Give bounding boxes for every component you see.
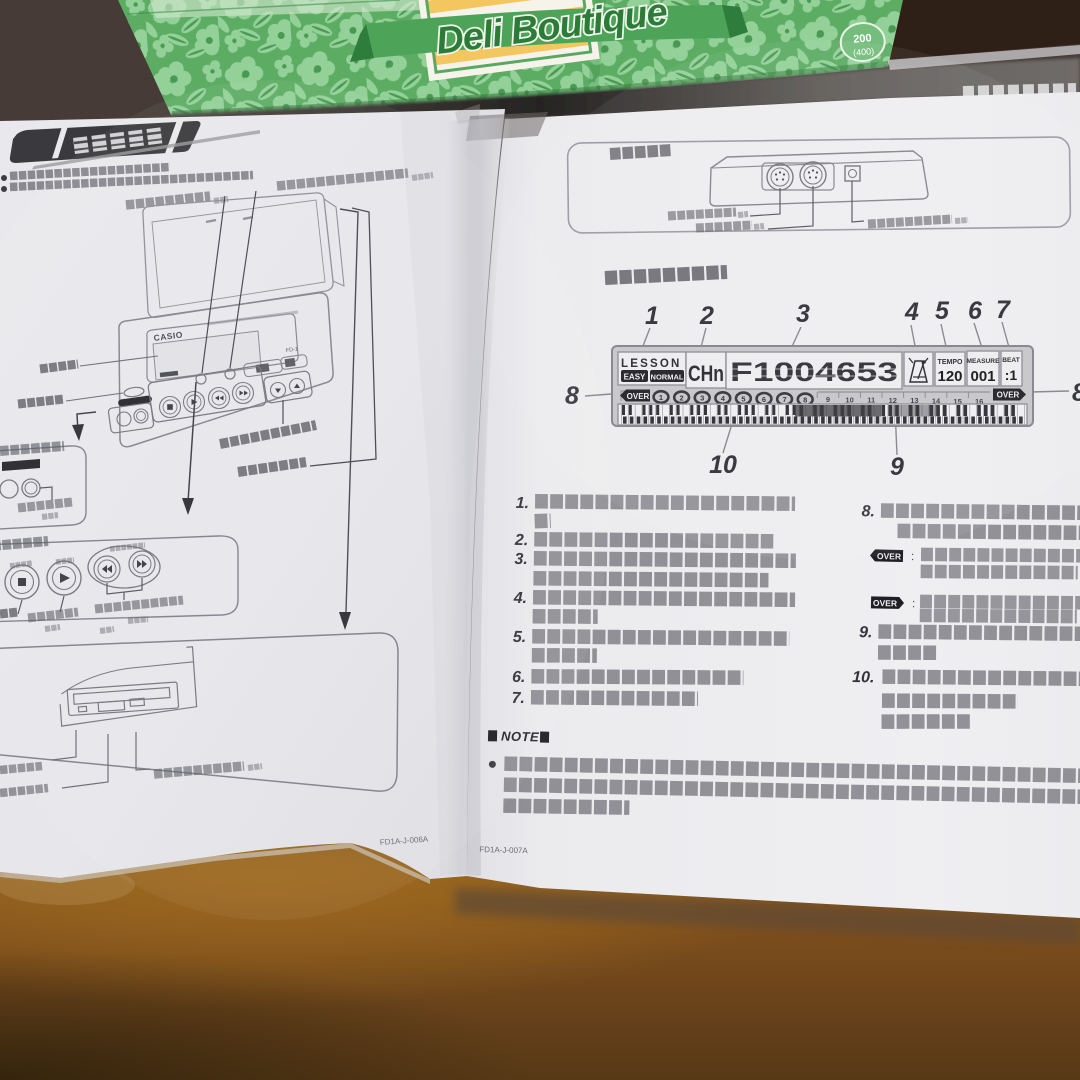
svg-text:9.: 9.	[859, 624, 873, 641]
svg-text::: :	[912, 596, 916, 610]
svg-text:10.: 10.	[852, 669, 875, 686]
svg-text:FD1A-J-007A: FD1A-J-007A	[479, 845, 528, 855]
svg-text:OVER: OVER	[873, 598, 897, 609]
svg-text::: :	[911, 549, 915, 563]
